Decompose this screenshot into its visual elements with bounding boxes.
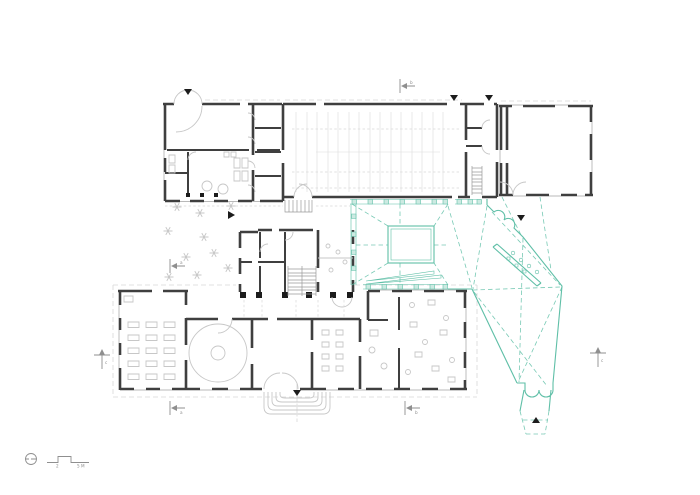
section-arrowhead-icon <box>171 405 177 411</box>
dome-room <box>186 319 360 389</box>
canopy-opening-outer <box>388 226 434 263</box>
entrance-arrow-icon <box>184 89 192 95</box>
section-arrowhead-icon <box>99 349 105 355</box>
tree-symbols <box>164 202 236 281</box>
title-block: 2 5 M <box>25 454 89 469</box>
right-pavilion <box>499 105 593 196</box>
stair-core-door-arcs <box>482 120 490 154</box>
courtyard-trees <box>164 202 236 281</box>
right-pavilion-walls <box>499 106 593 195</box>
dome-room-walls <box>186 319 360 389</box>
hall-door-swing-arcs <box>294 184 312 197</box>
north-symbol <box>25 454 37 465</box>
section-marker-icon <box>590 353 606 367</box>
pavilion-stool <box>535 270 539 274</box>
section-marker-a-courtyard: a <box>170 259 185 273</box>
plant-dot <box>381 363 387 369</box>
section-label: c <box>105 360 108 365</box>
east-wing-furniture <box>370 300 455 382</box>
pavilion-stool <box>519 258 523 262</box>
stair-core-interior-walls <box>466 128 482 146</box>
link-pillars <box>240 292 353 298</box>
hall-floor-lines <box>296 112 443 192</box>
north-wing <box>163 90 593 212</box>
door-posts <box>186 193 218 197</box>
canopy-wedge-skylights <box>366 271 441 284</box>
plant-dot <box>329 268 333 272</box>
classroom <box>118 291 188 390</box>
east-wing-window-sills <box>380 290 466 380</box>
left-pavilion-interior-walls <box>165 128 281 196</box>
right-pavilion-door-arcs <box>500 182 526 195</box>
scale-bar-line <box>47 457 89 463</box>
canopy-edge-lines <box>350 200 481 290</box>
stair-core <box>466 104 497 197</box>
section-arrowhead-icon <box>595 347 601 353</box>
section-label: b <box>410 80 413 85</box>
left-pavilion-furniture <box>169 152 248 181</box>
proposed-courtyard-canopy <box>350 200 482 290</box>
section-label: a <box>180 260 183 265</box>
section-markers: b a a b c c <box>94 79 606 415</box>
section-marker-a-bottom: a <box>170 401 185 415</box>
section-arrowhead-icon <box>401 83 407 89</box>
scale-end-label: 5 M <box>77 464 85 469</box>
round-table <box>218 184 228 194</box>
east-wing <box>368 290 467 389</box>
section-marker-icon <box>94 355 110 369</box>
south-wing <box>113 285 477 422</box>
canopy-opening-inner <box>391 229 431 260</box>
section-arrowhead-icon <box>171 263 177 269</box>
link-interior-walls <box>240 232 285 292</box>
east-wing-walls <box>368 291 467 389</box>
east-wing-interior-walls <box>368 297 399 389</box>
link-building <box>240 230 353 317</box>
dome-room-door-arc <box>218 319 232 333</box>
section-label: b <box>415 410 418 415</box>
classroom-desks <box>124 296 175 380</box>
section-label: a <box>180 410 183 415</box>
entrance-arrow-icon <box>517 215 525 221</box>
section-marker-c-left: c <box>94 349 110 369</box>
entrance-door-arcs <box>264 373 298 389</box>
plant-dot <box>450 358 455 363</box>
entrance-arrow-icon <box>485 95 493 101</box>
pavilion-stool <box>511 251 515 255</box>
left-pavilion <box>163 90 283 202</box>
section-arrowhead-icon <box>406 405 412 411</box>
section-marker-c-right: c <box>590 347 606 367</box>
plant-dot <box>336 250 340 254</box>
assembly-hall <box>283 104 466 212</box>
plant-dot <box>326 244 330 248</box>
section-label: c <box>601 358 604 363</box>
roof-outline-dashes <box>205 100 591 101</box>
scale-bar: 2 5 M <box>47 457 89 469</box>
plant-dot <box>410 303 415 308</box>
entrance-hall <box>264 319 330 422</box>
entrance-arrow-icon <box>293 390 301 396</box>
plant-dot <box>369 347 375 353</box>
pavilion-ridge-dashes <box>448 197 562 434</box>
floor-plan-drawing: b a a b c c <box>0 0 700 495</box>
plant-dot <box>406 370 411 375</box>
entrance-arrow-icon <box>228 211 235 219</box>
plant-dot <box>343 260 347 264</box>
link-stair <box>288 266 316 296</box>
proposed-pavilion-wing <box>448 197 562 434</box>
exterior-stair <box>285 200 312 212</box>
section-marker-b-bottom: b <box>405 401 420 415</box>
entrance-markers <box>184 89 540 423</box>
hall-walls <box>283 104 466 197</box>
scale-mid-label: 2 <box>56 464 59 469</box>
dome-oculus <box>211 346 225 360</box>
section-marker-b-top: b <box>400 79 415 93</box>
colonnade-dashes <box>244 300 344 317</box>
mid-rooms <box>322 319 360 389</box>
stair-treads <box>472 166 482 195</box>
round-table <box>202 181 212 191</box>
plant-dot <box>423 340 428 345</box>
mid-room-tables <box>322 330 343 371</box>
pavilion-small-tables <box>507 257 526 273</box>
pavilion-stool <box>527 264 531 268</box>
stair-core-walls <box>466 104 497 197</box>
right-pavilion-window-sills <box>500 105 592 196</box>
plant-dot <box>444 316 449 321</box>
